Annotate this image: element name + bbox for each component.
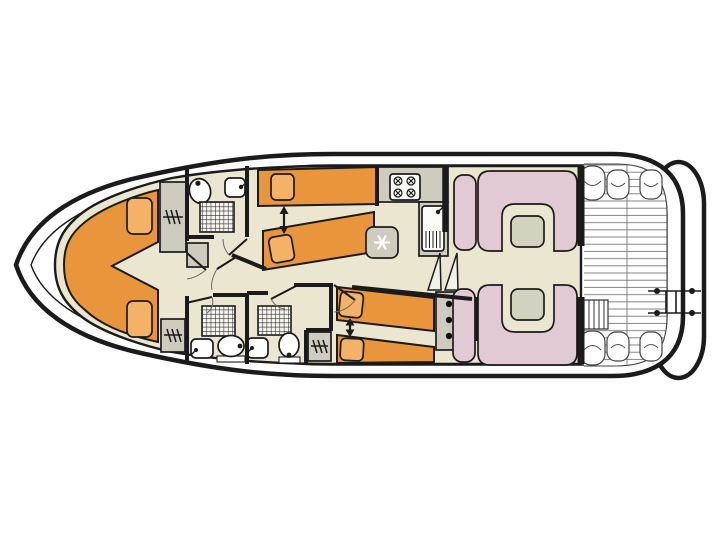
wardrobe <box>161 319 185 352</box>
wardrobe <box>308 332 331 361</box>
pillow <box>127 198 152 234</box>
corner-seat <box>607 170 629 199</box>
console-dial <box>446 301 452 307</box>
corner-seat <box>607 332 629 361</box>
corner-seat <box>640 170 662 199</box>
wardrobe <box>160 182 186 252</box>
washbasin <box>191 339 213 358</box>
dinette-table <box>511 216 544 247</box>
boat-deck-plan <box>0 0 720 540</box>
shower <box>202 306 235 336</box>
toilet <box>217 336 245 363</box>
fridge <box>366 227 398 258</box>
pillow <box>340 338 364 361</box>
washbasin <box>247 338 268 358</box>
galley-sink <box>422 206 444 251</box>
washbasin <box>225 178 246 197</box>
pillow <box>268 234 295 264</box>
console-dial <box>446 333 452 339</box>
stove <box>390 174 420 200</box>
pillow <box>271 174 294 200</box>
shower <box>200 202 234 232</box>
corner-seat <box>640 332 662 361</box>
deck-boarding-steps <box>584 300 608 329</box>
toilet <box>279 333 300 363</box>
deck-plan-canvas <box>0 0 720 540</box>
dinette-table <box>511 289 544 320</box>
shower <box>258 306 291 335</box>
console-dial <box>446 317 452 323</box>
pillow <box>127 301 152 337</box>
bench-seat <box>454 175 476 250</box>
